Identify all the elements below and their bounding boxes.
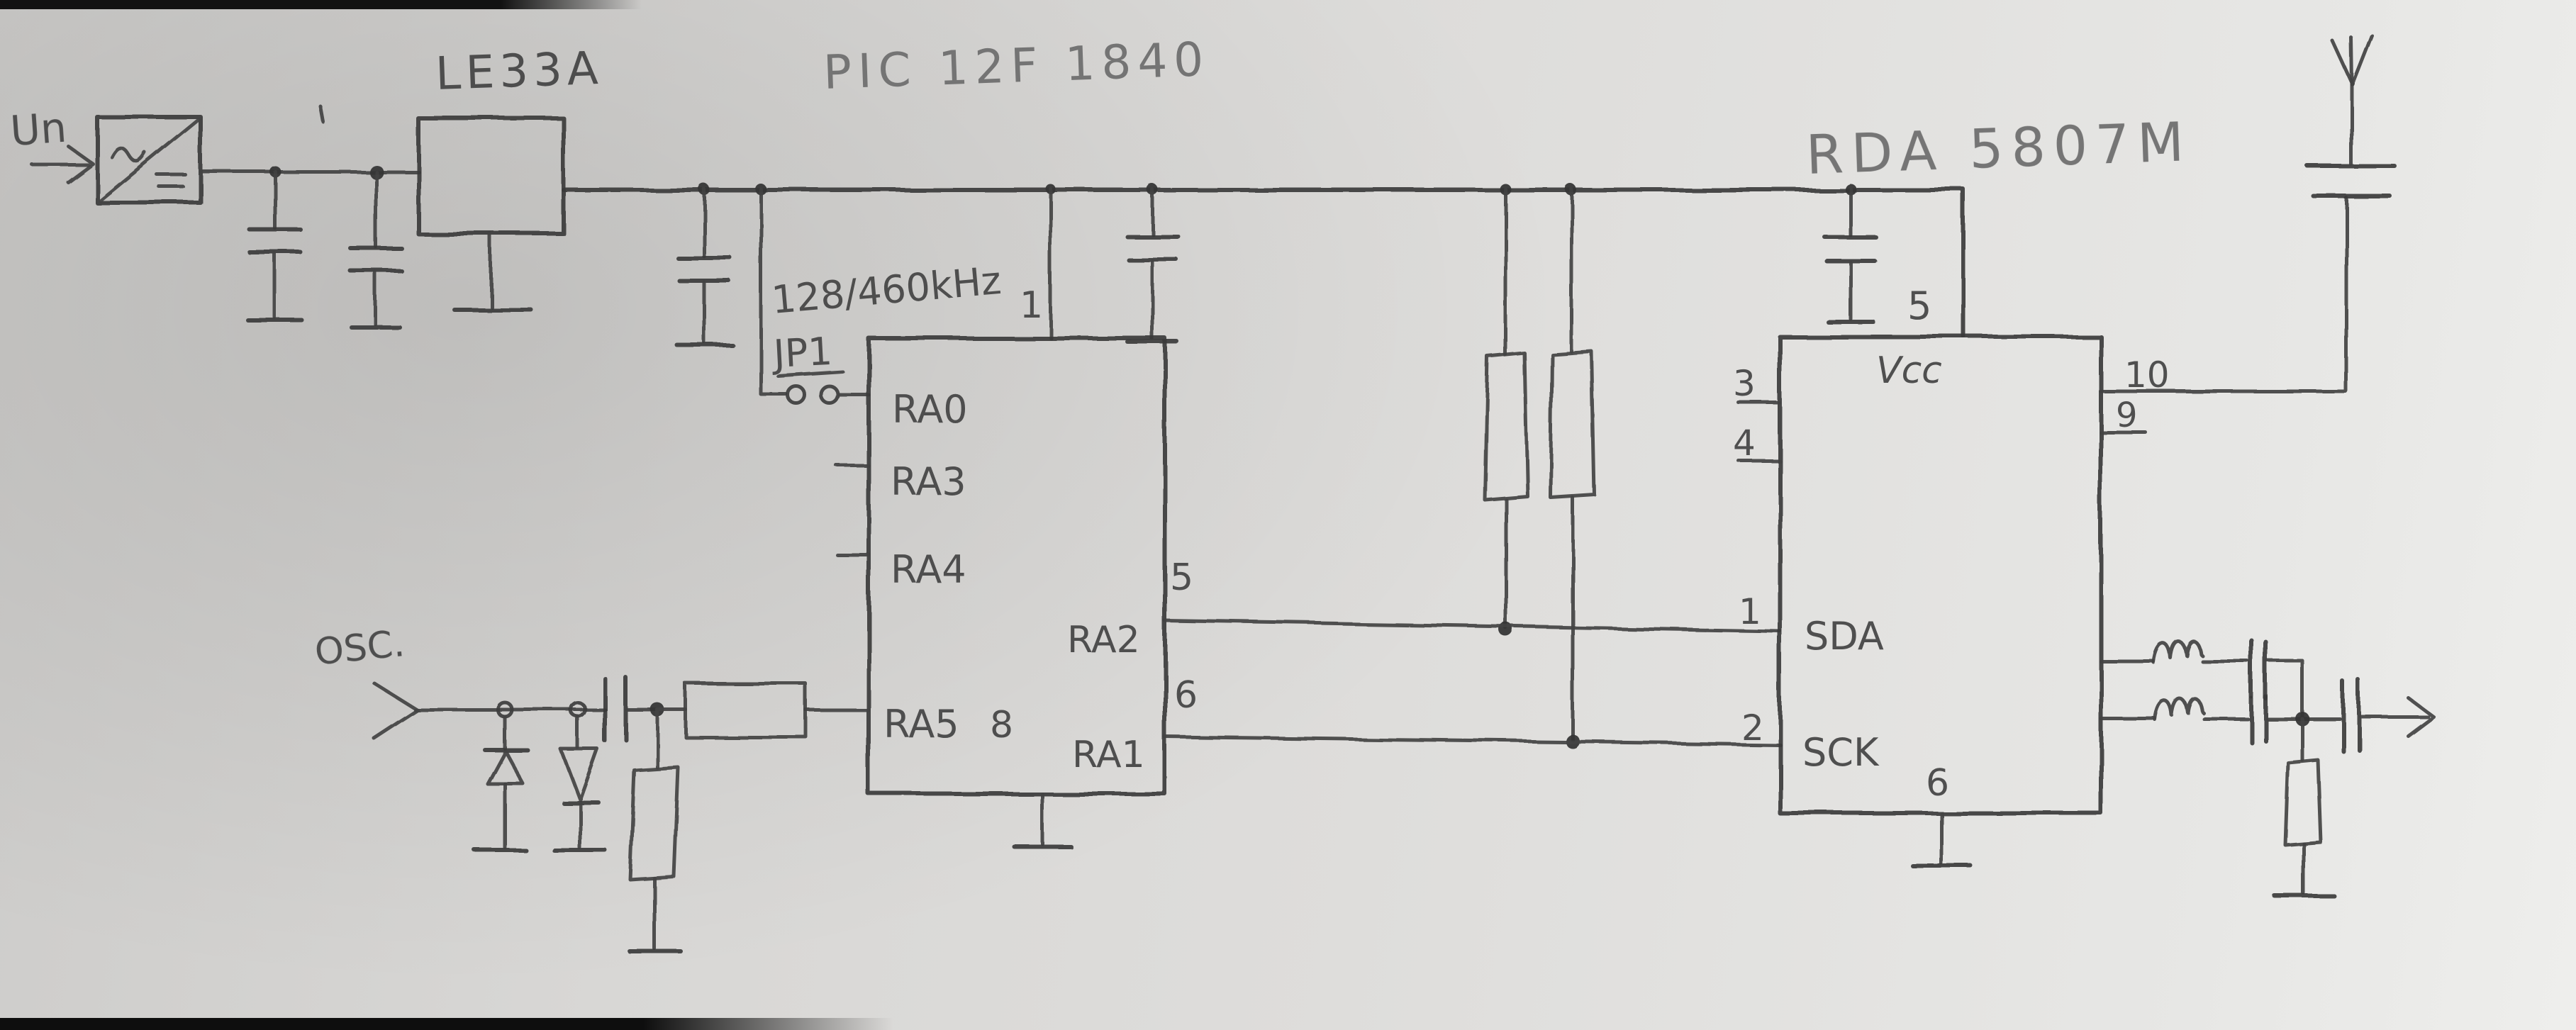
load-resistor: [2275, 719, 2334, 896]
osc-label: OSC.: [313, 622, 406, 674]
mcu-pin5-number: 5: [1170, 556, 1193, 599]
antenna-branch: [2101, 35, 2395, 391]
mcu-pin6-number: 6: [1174, 674, 1198, 717]
ac-wave-icon: [112, 148, 145, 162]
regulator-label: LE33A: [435, 43, 604, 101]
antenna-icon: [2332, 35, 2371, 164]
mcu-pin-ra5-label: RA5: [883, 702, 959, 746]
input-rail-wire: [201, 164, 418, 179]
audio-output-network: [2101, 640, 2433, 896]
mcu-pin-ra3-label: RA3: [891, 459, 966, 504]
dc-bars-icon: [157, 175, 186, 187]
radio-pin10-number: 10: [2124, 354, 2170, 396]
clamp-diode-down: [554, 717, 606, 851]
mcu-pin-ra0-label: RA0: [892, 387, 968, 432]
radio-vcc-label: Vcc: [1876, 349, 1942, 392]
radio-pin3-number: 3: [1733, 363, 1756, 404]
input-voltage-label: Un: [9, 103, 68, 155]
ac-dc-converter-box: [97, 117, 201, 203]
radio-pin1-number: 1: [1739, 591, 1761, 632]
radio-sda-label: SDA: [1805, 614, 1884, 659]
mcu-pin-ra2-label: RA2: [1067, 619, 1140, 661]
mcu-pin-ra4-label: RA4: [891, 547, 966, 592]
input-filter-capacitor-1: [248, 172, 302, 320]
radio-pin2-number: 2: [1741, 707, 1764, 749]
osc-input-network: [374, 677, 869, 951]
radio-pin5-number: 5: [1907, 284, 1931, 328]
radio-title: RDA 5807M: [1805, 110, 2193, 186]
inductor-icon: [2156, 699, 2204, 720]
jumper-label: JP1: [770, 329, 833, 376]
pullup-resistor-sda: [1485, 184, 1527, 637]
output-capacitor: [2343, 681, 2359, 751]
coupling-capacitor-1: [2251, 640, 2265, 698]
sda-bus-wire: [1165, 621, 1780, 631]
decoupling-capacitor-3: [1825, 184, 1876, 322]
decoupling-capacitor-2: [1127, 184, 1178, 342]
radio-pin9-number: 9: [2116, 396, 2138, 435]
input-filter-capacitor-2: [350, 172, 401, 328]
series-capacitor: [605, 677, 625, 741]
freq-note-label: 128/460kHz: [770, 258, 1003, 323]
mcu-title: PIC 12F 1840: [823, 32, 1211, 100]
stray-pencil-mark: [320, 106, 323, 122]
mcu-pin8-number: 8: [990, 704, 1013, 746]
radio-sck-label: SCK: [1802, 730, 1880, 775]
circuit-schematic-svg: Un LE33A PIC 12F 1840 128/460kHz JP1 1 R…: [0, 0, 2576, 1030]
series-resistor-horizontal: [657, 684, 869, 737]
regulator-box: [418, 118, 564, 309]
coupling-capacitor-2: [2251, 697, 2265, 742]
radio-pin6-number: 6: [1926, 762, 1949, 805]
antenna-capacitor: [2308, 167, 2395, 196]
pullup-resistor-sck: [1551, 184, 1595, 749]
radio-pin4-number: 4: [1733, 422, 1756, 464]
decoupling-capacitor-1: [676, 184, 732, 345]
mcu-pin-ra1-label: RA1: [1072, 734, 1145, 776]
mcu-vdd-wire: [1046, 184, 1056, 338]
osc-arrow-icon: [374, 683, 417, 738]
bias-resistor-vertical: [630, 710, 681, 951]
inductor-icon: [2154, 642, 2202, 663]
mcu-pin1-number: 1: [1020, 284, 1043, 327]
sck-bus-wire: [1165, 737, 1780, 744]
clamp-diode-up: [475, 717, 528, 851]
